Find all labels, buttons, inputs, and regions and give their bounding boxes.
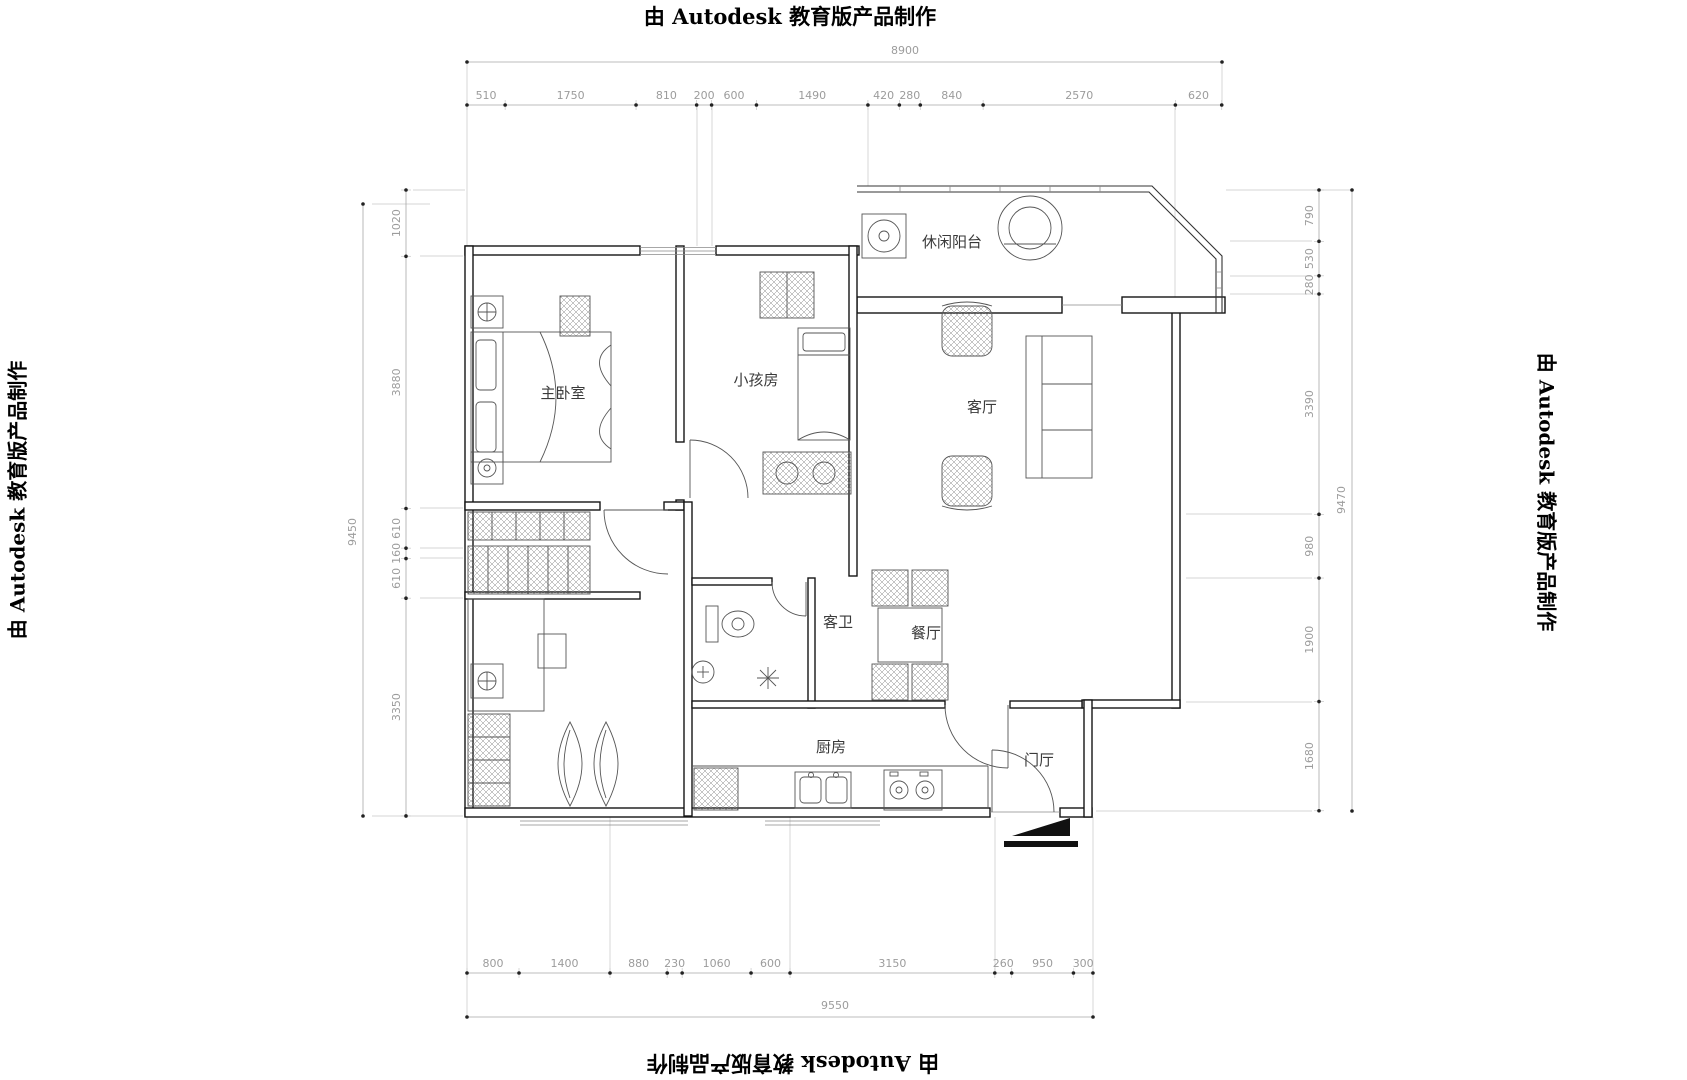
dimension-label: 230: [664, 957, 685, 970]
dimension-label: 800: [483, 957, 504, 970]
floor-plan-canvas: 主卧室 小孩房 休闲阳台 客厅 客卫 餐厅 厨房 门厅 8900 9550 94…: [0, 0, 1687, 1080]
dimension-label: 3390: [1303, 390, 1316, 418]
room-label-guest-bathroom: 客卫: [823, 613, 853, 631]
room-label-foyer: 门厅: [1024, 751, 1054, 769]
dimension-label: 880: [628, 957, 649, 970]
dimension-label: 610: [390, 518, 403, 539]
dimension-label: 610: [390, 568, 403, 589]
dimension-label: 1900: [1303, 626, 1316, 654]
dimension-label: 600: [724, 89, 745, 102]
dimension-label: 3880: [390, 368, 403, 396]
dimension-label: 280: [899, 89, 920, 102]
entry-arrow: [1004, 818, 1078, 847]
dimension-label: 950: [1032, 957, 1053, 970]
dimension-overall-bottom: 9550: [821, 999, 849, 1012]
balcony-windows: [857, 186, 1222, 313]
bathroom-fixtures: [692, 606, 779, 689]
room-label-dining-room: 餐厅: [911, 624, 941, 642]
dimension-overall-right: 9470: [1335, 486, 1348, 514]
dimension-chain-bottom: 800140088023010606003150260950300: [465, 957, 1095, 978]
dimension-chain-right: 790530280339098019001680: [1303, 188, 1324, 812]
room-label-leisure-balcony: 休闲阳台: [922, 233, 982, 251]
dimension-label: 2570: [1065, 89, 1093, 102]
dimension-label: 260: [993, 957, 1014, 970]
dimension-label: 510: [476, 89, 497, 102]
dimension-label: 160: [390, 543, 403, 564]
dimension-chain-top: 510175081020060014904202808402570620: [465, 89, 1223, 110]
dimension-label: 1020: [390, 209, 403, 237]
dimension-label: 790: [1303, 205, 1316, 226]
dimension-chain-left: 102038806101606103350: [390, 188, 411, 818]
room-label-kitchen: 厨房: [816, 738, 846, 756]
dimension-label: 620: [1188, 89, 1209, 102]
dimension-label: 600: [760, 957, 781, 970]
room-label-master-bedroom: 主卧室: [540, 384, 585, 402]
dimension-label: 810: [656, 89, 677, 102]
dimension-label: 3150: [878, 957, 906, 970]
dimension-label: 3350: [390, 693, 403, 721]
dimension-label: 1490: [798, 89, 826, 102]
room-label-living-room: 客厅: [967, 398, 997, 416]
dimension-label: 1680: [1303, 742, 1316, 770]
dimension-overall-top: 8900: [891, 44, 919, 57]
dimension-label: 200: [694, 89, 715, 102]
kitchen-fixtures: [692, 766, 988, 810]
living-room-furniture: [942, 302, 1092, 510]
dimension-overall-left: 9450: [346, 518, 359, 546]
floor-drain-icon: [757, 667, 779, 689]
dimension-label: 1060: [703, 957, 731, 970]
dimension-label: 280: [1303, 274, 1316, 295]
study-room-furniture: [468, 599, 618, 806]
dimension-label: 420: [873, 89, 894, 102]
dimension-label: 840: [941, 89, 962, 102]
room-label-kids-room: 小孩房: [733, 371, 778, 389]
dimension-label: 300: [1073, 957, 1094, 970]
corridor-closets: [468, 512, 590, 594]
dimension-label: 1400: [551, 957, 579, 970]
dimension-label: 1750: [557, 89, 585, 102]
dimension-label: 530: [1303, 248, 1316, 269]
dimension-label: 980: [1303, 536, 1316, 557]
